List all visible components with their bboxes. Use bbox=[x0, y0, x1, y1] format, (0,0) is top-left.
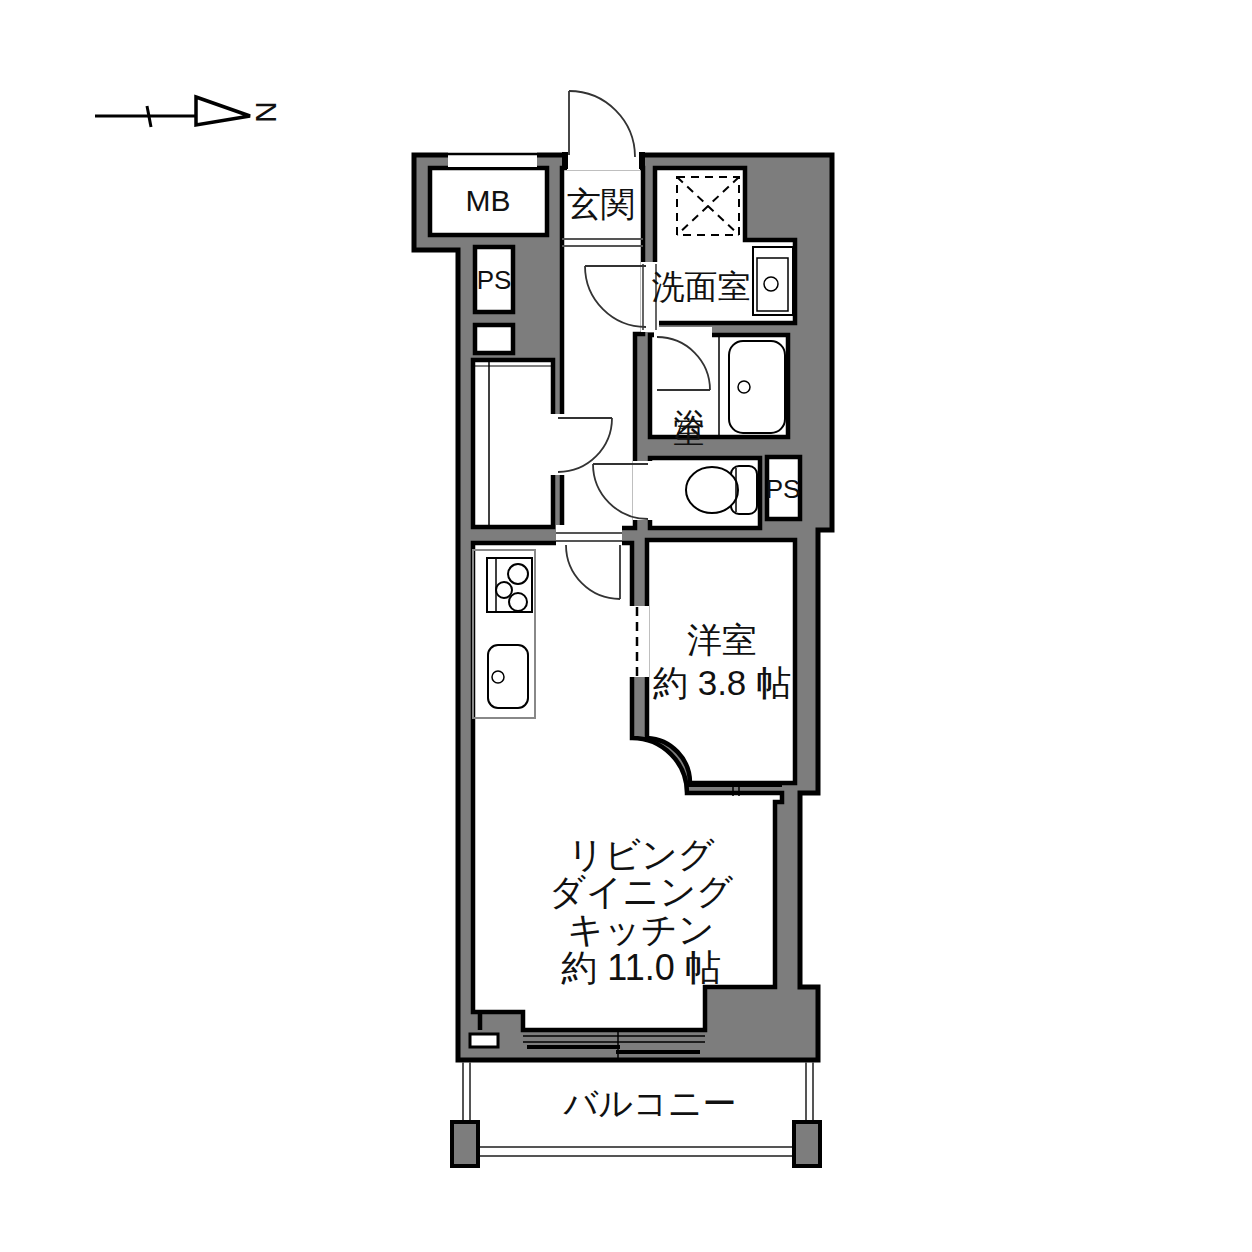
compass-north-label: N bbox=[251, 101, 281, 123]
wall-vent bbox=[470, 1034, 498, 1047]
ps-top-label: PS bbox=[477, 267, 512, 293]
toilet-door-gap bbox=[633, 461, 654, 520]
kitchen-sink-drain bbox=[492, 671, 504, 683]
compass-arrow bbox=[196, 97, 250, 125]
ldk-area-label: 約 11.0 帖 bbox=[561, 950, 720, 986]
balcony-label: バルコニー bbox=[563, 1086, 736, 1120]
entrance-label: 玄関 bbox=[567, 187, 635, 221]
vanity-faucet bbox=[764, 277, 778, 291]
compass-group bbox=[95, 97, 250, 127]
closet-floor bbox=[473, 360, 553, 527]
ldk-label-line-3: キッチン bbox=[567, 912, 714, 948]
duct-floor bbox=[475, 325, 513, 353]
sliding-door-gap bbox=[629, 606, 649, 677]
front-door-gap bbox=[567, 150, 640, 170]
western-room-floor bbox=[647, 540, 795, 783]
mb-label: MB bbox=[466, 186, 511, 216]
toilet-bowl bbox=[686, 467, 738, 513]
stove-burner-1 bbox=[508, 564, 528, 584]
compass-tick bbox=[147, 106, 151, 127]
bathtub-drain bbox=[738, 381, 750, 393]
balcony-post-right bbox=[794, 1122, 820, 1166]
front-door-arc bbox=[569, 91, 635, 157]
ldk-door-gap bbox=[556, 525, 622, 547]
front-door-jamb-right bbox=[639, 152, 645, 169]
western-room-area-label: 約 3.8 帖 bbox=[653, 665, 791, 700]
ps-right-label: PS bbox=[766, 476, 801, 502]
balcony-post-left bbox=[452, 1122, 478, 1166]
washroom-label: 洗面室 bbox=[652, 270, 751, 303]
stove-burner-2 bbox=[496, 582, 512, 598]
western-room-label: 洋室 bbox=[687, 622, 757, 657]
ldk-label-line-1: リビング bbox=[567, 837, 714, 873]
stove-burner-3 bbox=[509, 593, 527, 611]
ldk-label-line-2: ダイニング bbox=[549, 874, 733, 910]
closet-door-gap bbox=[550, 414, 569, 475]
bathroom-label: 浴室 bbox=[674, 384, 705, 396]
front-door-jamb-left bbox=[562, 152, 568, 169]
floorplan-page: N MB PS 玄関 洗面室 浴室 PS 洋室 約 3.8 帖 リビング ダイニ… bbox=[0, 0, 1252, 1252]
